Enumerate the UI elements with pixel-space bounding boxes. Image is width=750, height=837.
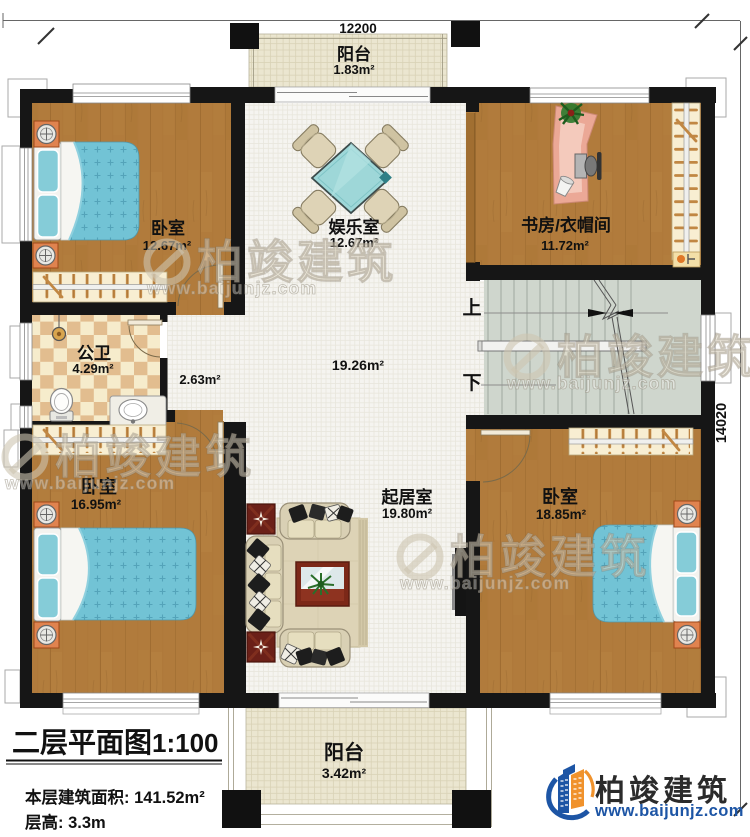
svg-text:1.83m²: 1.83m² [333, 62, 375, 77]
svg-text:起居室: 起居室 [381, 487, 433, 507]
svg-text:11.72m²: 11.72m² [541, 238, 589, 253]
svg-text:19.26m²: 19.26m² [332, 357, 384, 373]
svg-text:上: 上 [462, 297, 481, 319]
svg-text:层高: 3.3m: 层高: 3.3m [25, 812, 106, 832]
svg-text:阳台: 阳台 [337, 44, 371, 64]
svg-text:书房/衣帽间: 书房/衣帽间 [521, 215, 611, 235]
svg-text:2.63m²: 2.63m² [179, 372, 221, 387]
svg-text:16.95m²: 16.95m² [71, 497, 122, 512]
svg-text:娱乐室: 娱乐室 [329, 217, 380, 237]
svg-text:卧室: 卧室 [542, 486, 578, 507]
svg-text:阳台: 阳台 [324, 740, 364, 764]
svg-text:下: 下 [462, 373, 481, 394]
svg-text:14020: 14020 [714, 403, 730, 443]
svg-text:19.80m²: 19.80m² [382, 506, 433, 521]
svg-text:3.42m²: 3.42m² [322, 765, 367, 781]
svg-text:18.85m²: 18.85m² [536, 507, 587, 522]
svg-text:卧室: 卧室 [151, 218, 185, 238]
svg-text:本层建筑面积: 141.52m²: 本层建筑面积: 141.52m² [25, 787, 205, 807]
svg-text:www.baijunjz.com: www.baijunjz.com [594, 802, 744, 820]
svg-text:二层平面图1:100: 二层平面图1:100 [12, 727, 219, 758]
svg-text:4.29m²: 4.29m² [72, 361, 114, 376]
